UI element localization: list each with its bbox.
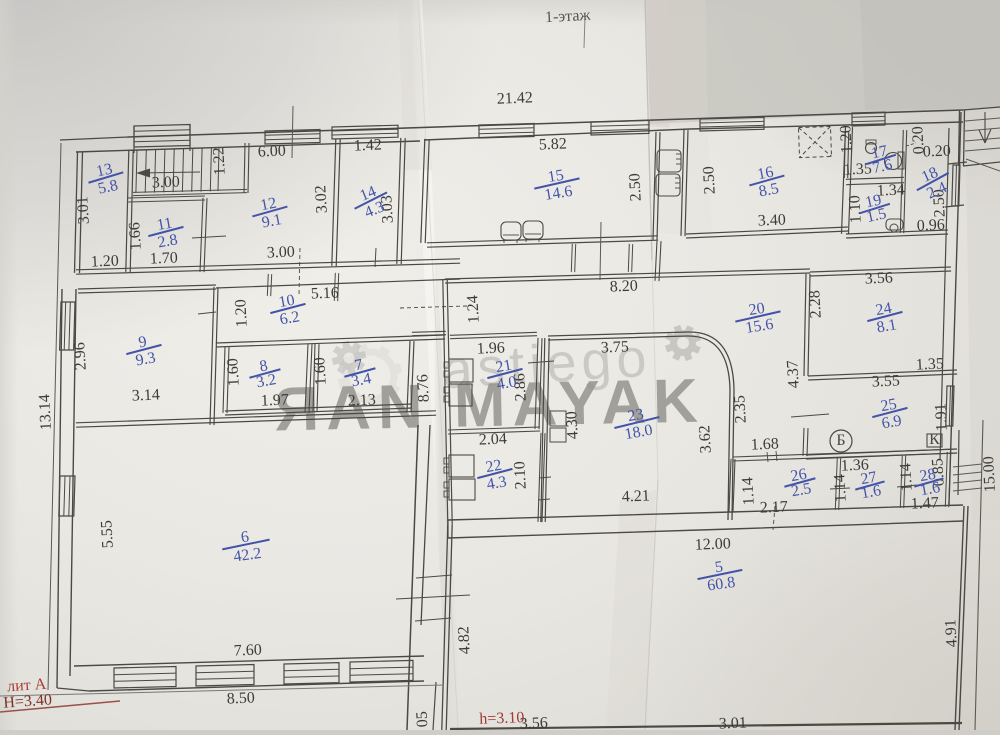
- svg-text:2.8: 2.8: [156, 231, 179, 251]
- svg-text:1.14: 1.14: [831, 474, 849, 503]
- svg-text:1.42: 1.42: [353, 136, 382, 154]
- svg-text:1.60: 1.60: [224, 358, 242, 387]
- svg-text:1.97: 1.97: [260, 391, 289, 409]
- svg-text:1.34: 1.34: [876, 181, 905, 199]
- svg-text:1.68: 1.68: [750, 435, 779, 453]
- svg-text:4.21: 4.21: [621, 487, 650, 505]
- svg-text:3.00: 3.00: [266, 243, 295, 261]
- svg-text:13.14: 13.14: [36, 394, 55, 431]
- svg-text:4.3: 4.3: [485, 473, 508, 493]
- svg-text:05: 05: [414, 711, 432, 728]
- svg-text:5.55: 5.55: [98, 520, 116, 549]
- svg-text:1.24: 1.24: [464, 295, 482, 324]
- svg-text:h=3.10: h=3.10: [479, 709, 525, 728]
- svg-text:2.5: 2.5: [790, 480, 813, 500]
- svg-text:5.82: 5.82: [538, 135, 567, 153]
- svg-text:Н=3.40: Н=3.40: [3, 691, 53, 711]
- svg-text:0.20: 0.20: [909, 126, 927, 155]
- svg-text:5.16: 5.16: [310, 284, 339, 302]
- svg-text:4.37: 4.37: [784, 360, 802, 389]
- svg-text:6.00: 6.00: [257, 142, 286, 160]
- svg-text:2.04: 2.04: [478, 430, 507, 448]
- svg-text:К: К: [929, 431, 940, 448]
- svg-text:1.96: 1.96: [476, 339, 505, 357]
- svg-text:1.14: 1.14: [739, 477, 757, 506]
- svg-text:4.82: 4.82: [455, 626, 473, 655]
- svg-text:1.66: 1.66: [126, 222, 144, 251]
- svg-text:8.76: 8.76: [414, 374, 432, 403]
- svg-text:3.75: 3.75: [600, 338, 629, 356]
- svg-text:1.22: 1.22: [210, 147, 228, 176]
- svg-text:3.40: 3.40: [757, 211, 786, 229]
- svg-text:3.62: 3.62: [696, 425, 714, 454]
- svg-text:2.50: 2.50: [700, 166, 718, 195]
- svg-text:1.20: 1.20: [90, 252, 119, 270]
- svg-text:2.10: 2.10: [511, 461, 529, 490]
- svg-text:3.4: 3.4: [350, 370, 373, 390]
- svg-text:1.6: 1.6: [860, 482, 883, 502]
- svg-text:2.50: 2.50: [626, 173, 644, 202]
- svg-text:1.10: 1.10: [846, 195, 864, 224]
- svg-text:9.3: 9.3: [134, 349, 157, 369]
- svg-text:1.91: 1.91: [932, 403, 950, 432]
- svg-text:3.55: 3.55: [871, 372, 900, 390]
- svg-text:4.0: 4.0: [495, 373, 518, 393]
- svg-text:8.50: 8.50: [226, 689, 255, 707]
- svg-text:15.00: 15.00: [980, 456, 999, 493]
- svg-text:2.28: 2.28: [806, 290, 824, 319]
- svg-text:2.13: 2.13: [347, 391, 376, 409]
- svg-text:3.00: 3.00: [151, 173, 180, 191]
- svg-text:12.00: 12.00: [694, 535, 731, 554]
- svg-text:3.01: 3.01: [718, 714, 747, 730]
- svg-text:2.96: 2.96: [71, 342, 89, 371]
- svg-text:1.6: 1.6: [919, 479, 942, 499]
- svg-text:3.02: 3.02: [312, 185, 330, 214]
- svg-text:2.35: 2.35: [731, 395, 749, 424]
- svg-text:4.91: 4.91: [942, 619, 960, 648]
- svg-text:1.14: 1.14: [897, 463, 915, 492]
- svg-text:1.70: 1.70: [149, 249, 178, 267]
- svg-text:1.20: 1.20: [232, 299, 250, 328]
- svg-text:8.20: 8.20: [609, 277, 638, 295]
- svg-text:1.20: 1.20: [837, 125, 855, 154]
- svg-text:2.17: 2.17: [759, 498, 788, 516]
- svg-text:3.01: 3.01: [74, 196, 92, 225]
- svg-text:7.60: 7.60: [233, 641, 262, 659]
- svg-text:4.30: 4.30: [563, 411, 581, 440]
- svg-text:1.60: 1.60: [311, 357, 329, 386]
- svg-text:1.35: 1.35: [915, 355, 944, 373]
- svg-text:3.14: 3.14: [131, 386, 160, 404]
- svg-text:Б: Б: [836, 432, 845, 449]
- svg-text:3.56: 3.56: [864, 269, 893, 287]
- svg-text:21.42: 21.42: [496, 89, 533, 108]
- svg-text:0.96: 0.96: [916, 216, 945, 234]
- svg-text:6.9: 6.9: [880, 412, 903, 432]
- svg-text:8.1: 8.1: [875, 316, 898, 336]
- svg-text:6.2: 6.2: [278, 308, 301, 328]
- svg-text:3.2: 3.2: [255, 371, 278, 391]
